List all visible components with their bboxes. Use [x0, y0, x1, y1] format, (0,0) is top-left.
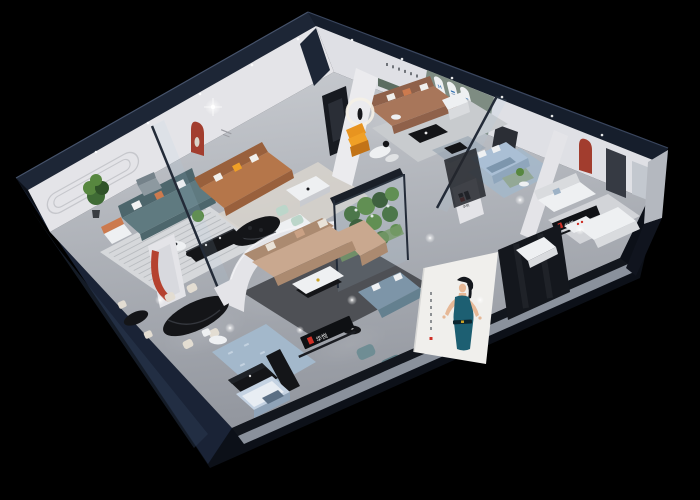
small-white-table: [209, 336, 227, 345]
side-table-b: [391, 114, 401, 119]
showroom-render: M: [0, 0, 700, 500]
niche-sculpture: [195, 137, 200, 147]
doorway-d: [606, 148, 626, 198]
red-arch-niche-d: [579, 139, 592, 174]
poster-red-seal: [430, 337, 433, 340]
bedroom-plant: [516, 168, 524, 176]
table-lamp: [383, 141, 389, 147]
showroom-scene: M: [0, 0, 700, 500]
poster-board: [414, 252, 498, 364]
bedroom-side-table: [519, 182, 529, 187]
